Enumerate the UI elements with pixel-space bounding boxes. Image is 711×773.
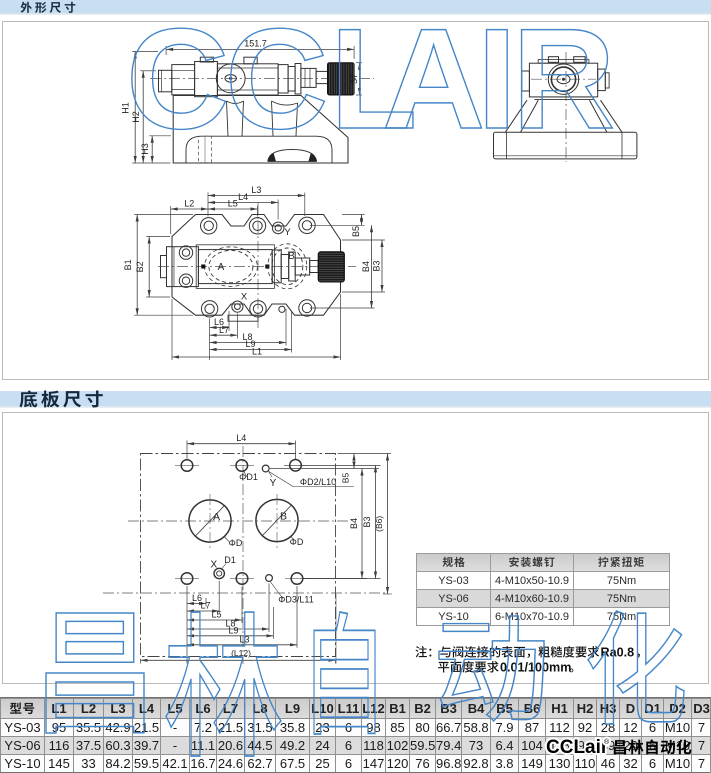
svg-text:(L12): (L12) [231,648,251,658]
svg-text:X: X [241,292,248,303]
svg-text:L2: L2 [184,199,194,209]
svg-text:B5: B5 [351,226,361,237]
svg-text:L7: L7 [219,325,229,335]
svg-text:ΦD: ΦD [290,537,304,547]
svg-text:B: B [288,251,295,262]
svg-text:Y: Y [270,478,277,489]
svg-text:®: ® [604,738,610,746]
svg-text:ΦD3/L11: ΦD3/L11 [278,595,314,605]
svg-text:B4: B4 [349,518,359,529]
svg-text:A: A [218,262,225,273]
svg-text:L5: L5 [211,610,221,620]
svg-text:L4: L4 [236,433,246,443]
svg-text:L9: L9 [228,626,238,636]
svg-text:B2: B2 [135,261,145,272]
svg-text:L7: L7 [200,601,210,611]
svg-text:CCLair: CCLair [546,737,609,758]
svg-text:X: X [210,560,217,571]
svg-text:ΦD: ΦD [229,538,243,548]
svg-text:ΦD1: ΦD1 [239,472,258,482]
svg-text:(B6): (B6) [374,516,384,532]
svg-text:B4: B4 [361,261,371,272]
svg-text:B3: B3 [362,516,372,527]
svg-text:ΦD2/L10: ΦD2/L10 [300,477,336,487]
svg-text:L1: L1 [252,347,262,357]
svg-text:Y: Y [284,227,291,238]
svg-text:0.01/100mm: 0.01/100mm [500,661,571,675]
svg-text:L4: L4 [238,192,248,202]
svg-text:B5: B5 [341,473,351,484]
svg-text:B1: B1 [123,259,133,270]
svg-text:L5: L5 [228,199,238,209]
svg-text:B3: B3 [372,260,382,271]
svg-text:CCLAIR: CCLAIR [126,0,615,159]
svg-text:L3: L3 [251,185,261,195]
